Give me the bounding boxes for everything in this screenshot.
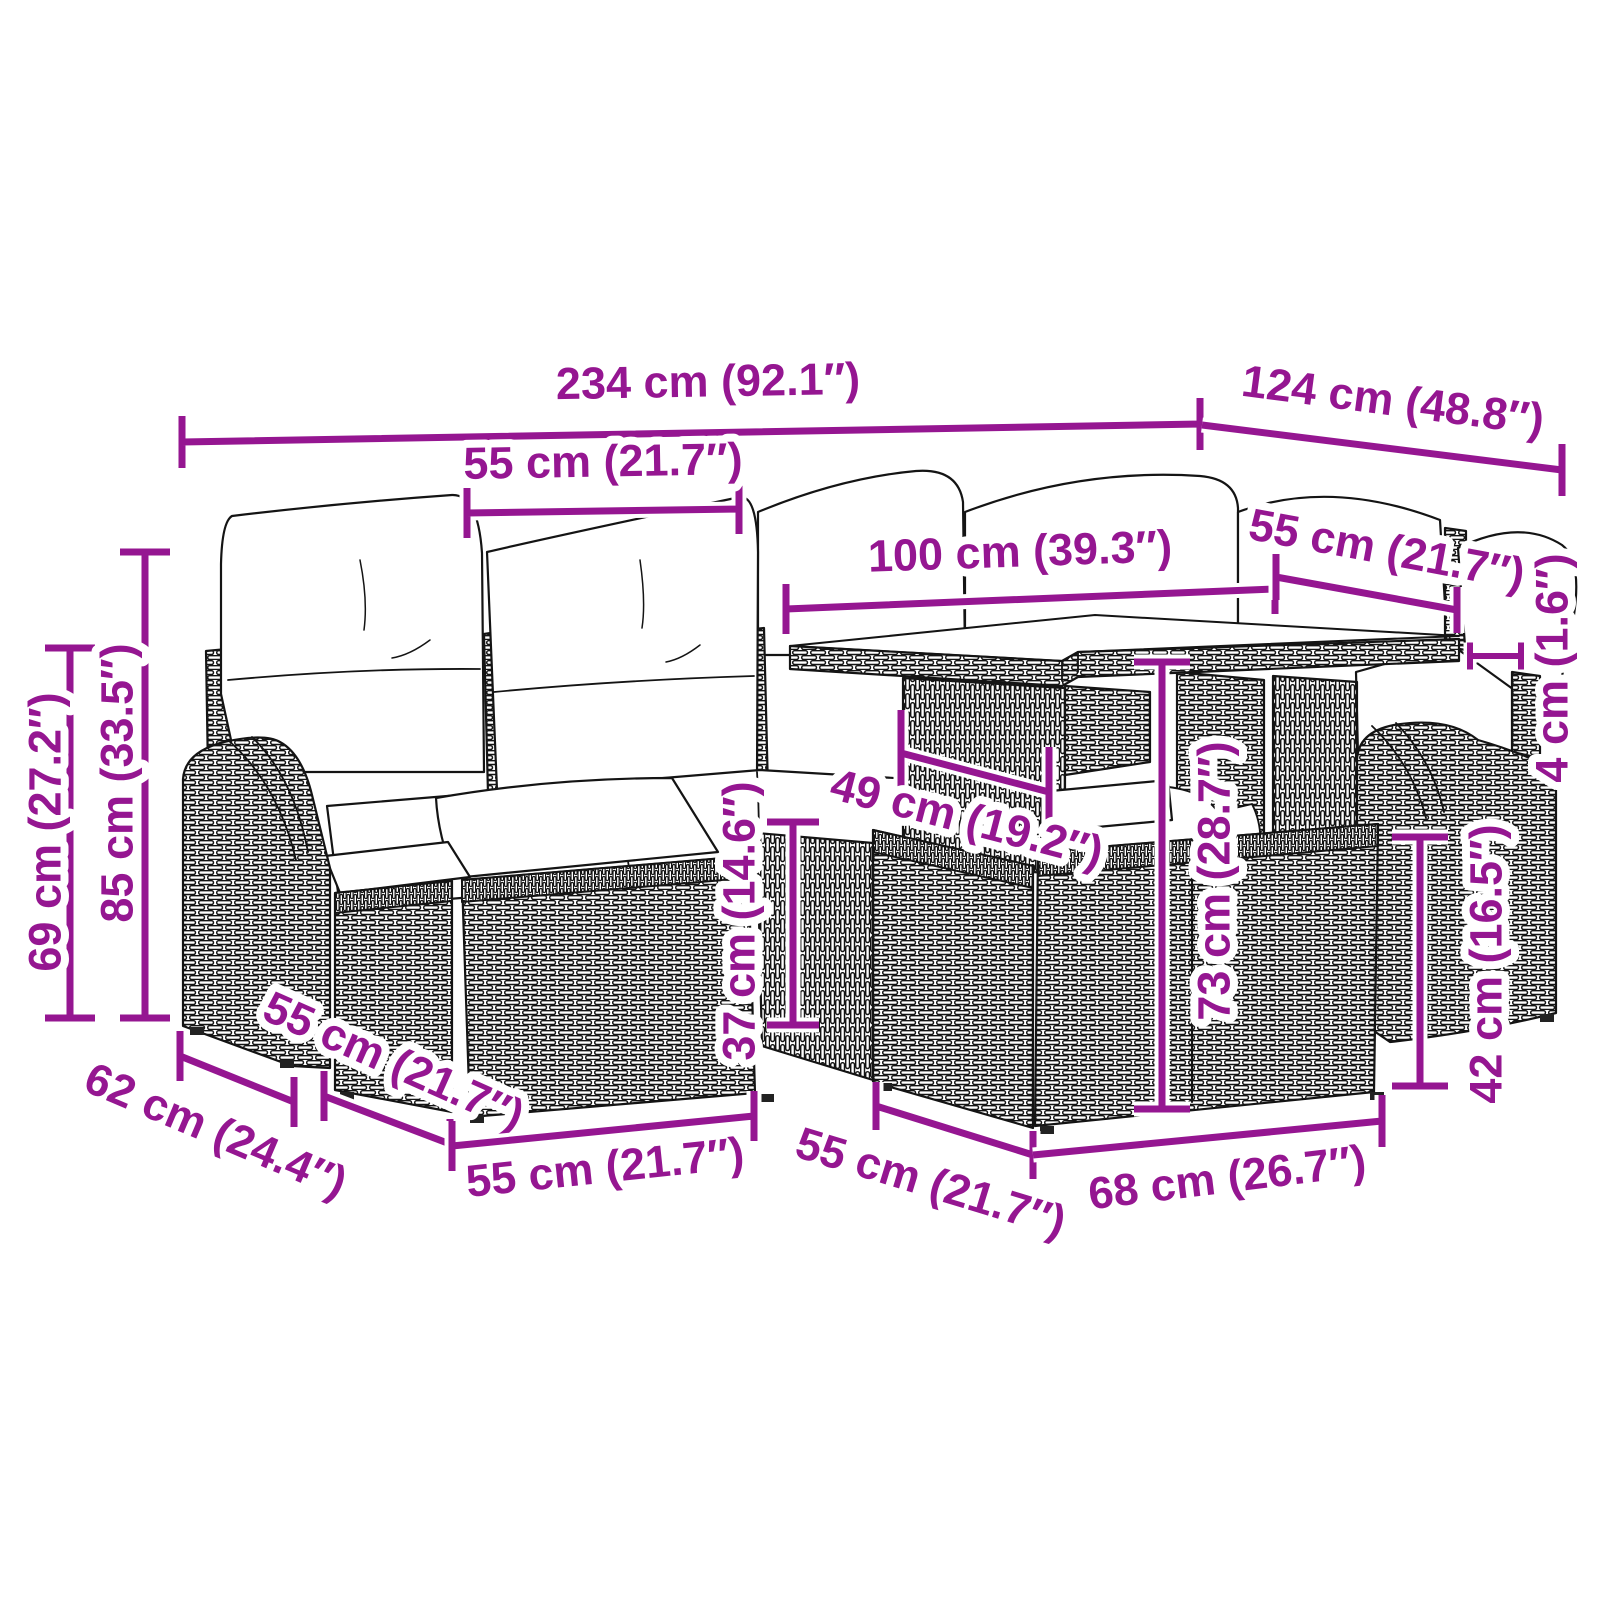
svg-text:55 cm (21.7″): 55 cm (21.7″) xyxy=(463,433,743,489)
svg-text:4 cm (1.6″): 4 cm (1.6″) xyxy=(1527,553,1578,782)
svg-text:42 cm (16.5″): 42 cm (16.5″) xyxy=(1461,824,1512,1103)
svg-text:100 cm (39.3″): 100 cm (39.3″) xyxy=(867,520,1173,582)
svg-text:85 cm (33.5″): 85 cm (33.5″) xyxy=(92,643,143,922)
svg-text:73 cm (28.7″): 73 cm (28.7″) xyxy=(1189,741,1240,1020)
svg-text:69 cm (27.2″): 69 cm (27.2″) xyxy=(20,692,71,971)
svg-text:234 cm (92.1″): 234 cm (92.1″) xyxy=(555,353,860,409)
svg-text:37 cm (14.6″): 37 cm (14.6″) xyxy=(714,781,765,1060)
